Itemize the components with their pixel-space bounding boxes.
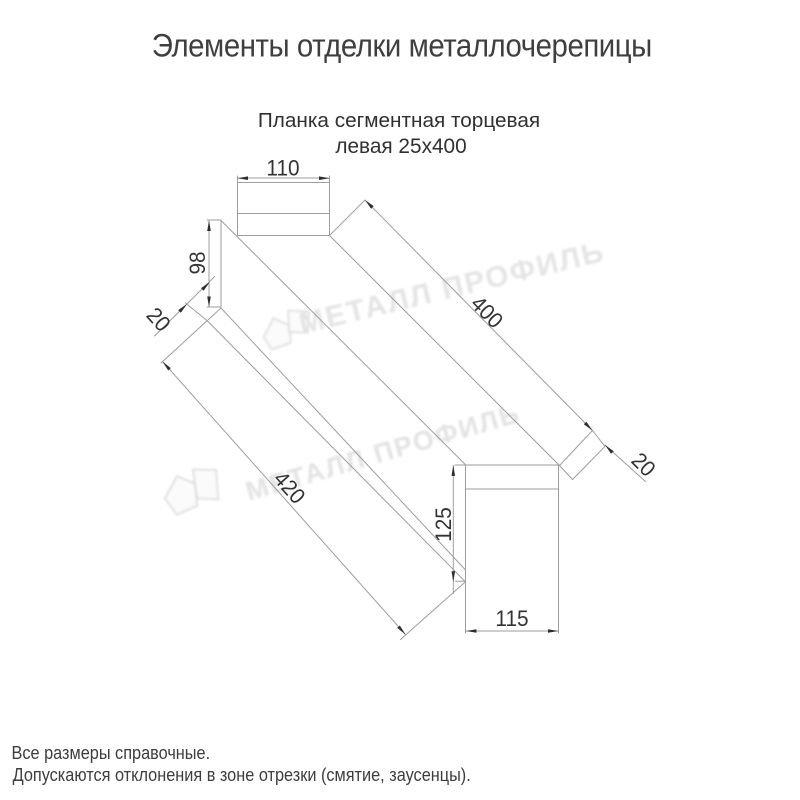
svg-text:125: 125	[431, 507, 456, 542]
svg-text:Элементы отделки металлочерепи: Элементы отделки металлочерепицы	[152, 27, 652, 64]
svg-text:110: 110	[266, 156, 299, 181]
svg-text:115: 115	[495, 606, 528, 631]
svg-text:Планка сегментная торцевая: Планка сегментная торцевая	[258, 109, 540, 132]
svg-text:Все размеры справочные.: Все размеры справочные.	[12, 742, 211, 763]
svg-text:левая 25х400: левая 25х400	[335, 135, 466, 158]
svg-text:Допускаются отклонения в зоне: Допускаются отклонения в зоне отрезки (с…	[13, 764, 471, 785]
svg-text:98: 98	[185, 251, 210, 274]
